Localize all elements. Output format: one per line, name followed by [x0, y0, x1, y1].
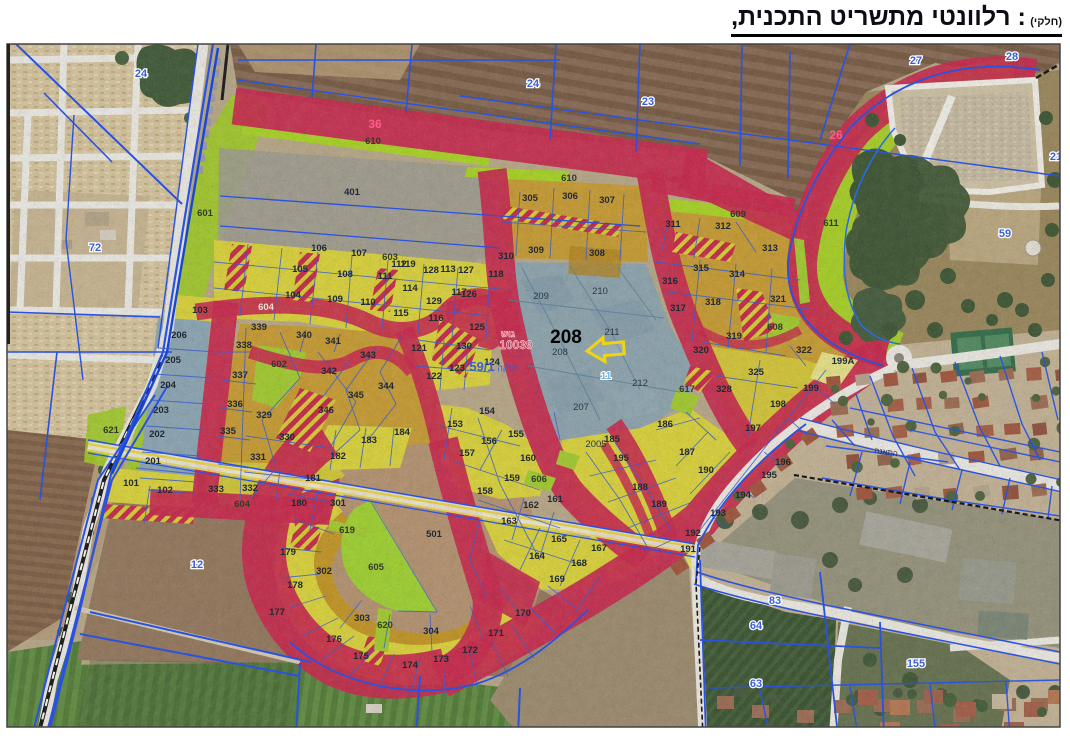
svg-text:24: 24	[527, 78, 540, 90]
svg-text:501: 501	[426, 529, 443, 540]
svg-text:168: 168	[571, 558, 587, 569]
svg-text:329: 329	[256, 410, 272, 421]
svg-text:617: 617	[679, 384, 695, 395]
svg-text:199: 199	[803, 383, 819, 394]
svg-text:188: 188	[632, 482, 648, 493]
svg-text:204: 204	[160, 380, 177, 391]
svg-text:23: 23	[642, 96, 654, 108]
svg-text:328: 328	[716, 384, 732, 395]
svg-text:208: 208	[550, 327, 582, 348]
svg-text:337: 337	[232, 370, 248, 381]
svg-text:177: 177	[269, 607, 285, 618]
svg-text:210: 210	[592, 286, 608, 297]
svg-text:321: 321	[770, 294, 787, 305]
svg-text:113: 113	[440, 264, 455, 275]
svg-text:320: 320	[693, 345, 709, 356]
svg-text:610: 610	[561, 173, 577, 184]
svg-text:198: 198	[770, 399, 786, 410]
svg-text:130: 130	[456, 341, 472, 352]
svg-text:306: 306	[562, 191, 578, 202]
svg-text:311: 311	[665, 219, 681, 230]
svg-text:201: 201	[145, 456, 162, 467]
svg-text:171: 171	[488, 628, 505, 639]
svg-text:195: 195	[761, 470, 778, 481]
svg-text:חלקה: חלקה	[497, 363, 519, 373]
svg-text:119: 119	[400, 259, 415, 270]
svg-text:189: 189	[651, 499, 667, 510]
svg-text:317: 317	[670, 303, 686, 314]
svg-text:169: 169	[549, 574, 565, 585]
svg-text:184: 184	[394, 427, 411, 438]
svg-text:59: 59	[999, 228, 1011, 240]
svg-text:605: 605	[368, 562, 385, 573]
svg-text:28: 28	[1006, 51, 1018, 63]
svg-text:181: 181	[305, 473, 322, 484]
svg-text:110: 110	[360, 297, 375, 308]
svg-text:59/1: 59/1	[469, 359, 494, 374]
svg-text:316: 316	[662, 276, 678, 287]
svg-text:170: 170	[515, 608, 531, 619]
svg-text:157: 157	[459, 448, 475, 459]
svg-text:118: 118	[488, 269, 503, 280]
svg-text:307: 307	[599, 195, 615, 206]
svg-text:167: 167	[591, 543, 607, 554]
svg-text:304: 304	[423, 626, 440, 637]
svg-text:344: 344	[378, 381, 395, 392]
svg-text:159: 159	[504, 473, 520, 484]
svg-text:330: 330	[279, 432, 295, 443]
svg-text:212: 212	[632, 378, 648, 389]
svg-text:331: 331	[250, 452, 267, 463]
svg-text:333: 333	[208, 484, 224, 495]
svg-text:305: 305	[522, 193, 539, 204]
svg-text:165: 165	[551, 534, 568, 545]
svg-text:129: 129	[426, 296, 442, 307]
svg-text:195: 195	[613, 453, 630, 464]
svg-text:63: 63	[750, 678, 762, 690]
svg-text:190: 190	[698, 465, 714, 476]
svg-text:155: 155	[907, 658, 925, 670]
svg-text:206: 206	[171, 330, 187, 341]
svg-text:335: 335	[220, 426, 237, 437]
svg-text:162: 162	[523, 500, 539, 511]
svg-text:102: 102	[157, 485, 173, 496]
svg-text:104: 104	[285, 290, 302, 301]
svg-text:176: 176	[326, 634, 342, 645]
svg-text:314: 314	[729, 269, 746, 280]
svg-text:339: 339	[251, 322, 267, 333]
svg-text:602: 602	[271, 359, 287, 370]
svg-text:179: 179	[280, 547, 296, 558]
svg-text:191: 191	[680, 544, 697, 555]
svg-text:332: 332	[242, 483, 258, 494]
svg-text:103: 103	[192, 305, 208, 316]
svg-text:604: 604	[234, 499, 251, 510]
svg-text:345: 345	[348, 390, 365, 401]
svg-text:343: 343	[360, 350, 376, 361]
svg-text:64: 64	[750, 620, 763, 632]
svg-text:318: 318	[705, 297, 721, 308]
svg-text:342: 342	[321, 366, 337, 377]
svg-text:172: 172	[462, 645, 478, 656]
svg-text:173: 173	[433, 654, 449, 665]
svg-text:313: 313	[762, 243, 778, 254]
svg-text:401: 401	[344, 187, 361, 198]
svg-text:199A: 199A	[832, 356, 855, 367]
svg-text:128: 128	[423, 265, 439, 276]
svg-text:203: 203	[153, 405, 169, 416]
svg-text:603: 603	[382, 252, 398, 263]
svg-text:196: 196	[775, 457, 791, 468]
svg-text:107: 107	[351, 248, 367, 259]
svg-text:610: 610	[365, 136, 381, 147]
svg-text:116: 116	[428, 313, 443, 324]
svg-text:197: 197	[745, 423, 761, 434]
svg-text:155: 155	[508, 429, 525, 440]
svg-text:122: 122	[426, 371, 442, 382]
svg-text:108: 108	[337, 269, 353, 280]
svg-text:308: 308	[589, 248, 605, 259]
svg-text:319: 319	[726, 331, 742, 342]
svg-text:192: 192	[685, 528, 701, 539]
svg-text:178: 178	[287, 580, 303, 591]
svg-text:161: 161	[547, 494, 564, 505]
svg-text:24: 24	[135, 68, 148, 80]
svg-text:338: 338	[236, 340, 252, 351]
svg-text:154: 154	[479, 406, 496, 417]
svg-text:609: 609	[730, 209, 746, 220]
svg-text:611: 611	[823, 218, 839, 229]
svg-text:194: 194	[735, 490, 752, 501]
svg-text:608: 608	[767, 322, 783, 333]
svg-text:340: 340	[296, 330, 312, 341]
svg-text:26: 26	[829, 128, 843, 142]
svg-text:105: 105	[292, 264, 309, 275]
svg-text:604: 604	[258, 302, 275, 313]
svg-text:187: 187	[679, 447, 695, 458]
svg-text:182: 182	[330, 451, 346, 462]
svg-text:180: 180	[291, 498, 307, 509]
svg-text:12: 12	[191, 559, 203, 571]
svg-text:156: 156	[481, 436, 497, 447]
svg-text:315: 315	[693, 263, 710, 274]
svg-text:209: 209	[533, 291, 549, 302]
svg-text:126: 126	[461, 289, 477, 300]
svg-text:185: 185	[604, 434, 621, 445]
svg-text:301: 301	[330, 498, 347, 509]
svg-text:621: 621	[103, 425, 120, 436]
svg-text:10039: 10039	[499, 338, 533, 352]
svg-text:111: 111	[378, 271, 394, 282]
svg-text:158: 158	[477, 486, 493, 497]
svg-text:72: 72	[89, 242, 101, 254]
svg-text:174: 174	[402, 660, 419, 671]
svg-text:205: 205	[165, 355, 182, 366]
svg-text:121: 121	[411, 343, 428, 354]
svg-text:312: 312	[715, 221, 731, 232]
svg-text:211: 211	[604, 327, 619, 338]
svg-text:207: 207	[573, 402, 589, 413]
svg-text:346: 346	[318, 405, 334, 416]
svg-text:619: 619	[339, 525, 355, 536]
svg-text:341: 341	[325, 336, 342, 347]
svg-text:83: 83	[769, 595, 781, 607]
svg-text:606: 606	[531, 474, 547, 485]
svg-text:115: 115	[393, 308, 409, 319]
svg-text:123: 123	[449, 363, 465, 374]
svg-text:109: 109	[327, 294, 343, 305]
svg-text:202: 202	[149, 429, 165, 440]
svg-text:302: 302	[316, 566, 332, 577]
svg-text:309: 309	[528, 245, 544, 256]
svg-text:160: 160	[520, 453, 536, 464]
svg-text:325: 325	[748, 367, 765, 378]
svg-text:175: 175	[353, 651, 370, 662]
svg-text:36: 36	[368, 117, 382, 131]
svg-text:27: 27	[910, 55, 922, 67]
svg-text:164: 164	[529, 551, 546, 562]
svg-text:601: 601	[197, 208, 214, 219]
svg-text:114: 114	[402, 283, 418, 294]
svg-text:101: 101	[123, 478, 140, 489]
svg-text:183: 183	[361, 435, 377, 446]
svg-text:310: 310	[498, 251, 514, 262]
svg-text:127: 127	[458, 265, 474, 276]
svg-text:186: 186	[657, 419, 673, 430]
svg-text:163: 163	[501, 516, 517, 527]
svg-text:106: 106	[311, 243, 327, 254]
svg-text:336: 336	[227, 399, 243, 410]
svg-text:125: 125	[469, 322, 486, 333]
svg-text:322: 322	[796, 345, 812, 356]
svg-text:303: 303	[354, 613, 370, 624]
svg-text:11: 11	[601, 371, 612, 382]
svg-text:193: 193	[710, 508, 726, 519]
svg-text:620: 620	[377, 620, 393, 631]
svg-text:208: 208	[552, 347, 568, 358]
svg-text:153: 153	[447, 419, 463, 430]
